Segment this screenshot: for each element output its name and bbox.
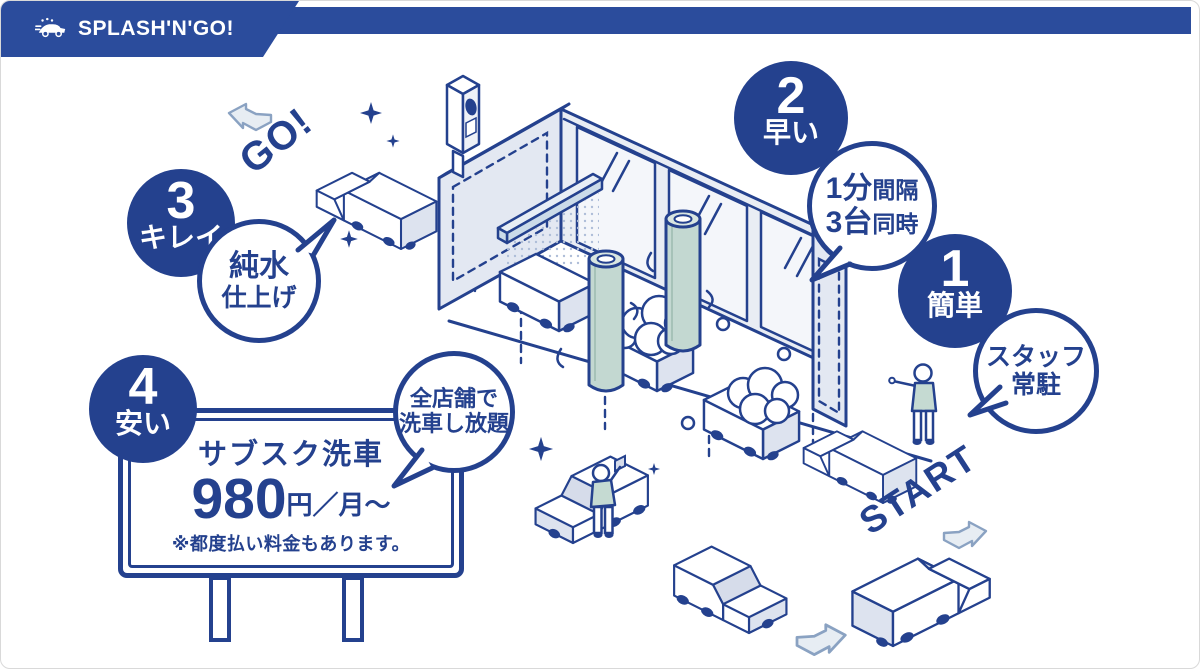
all-stores-bubble: 全店舗で 洗車し放題 <box>393 351 515 473</box>
all-stores-line-1: 全店舗で <box>410 387 498 412</box>
speed-line-2: 3台同時 <box>826 206 919 240</box>
speech-bubble-tail <box>392 448 440 492</box>
signboard-leg-left <box>209 576 231 642</box>
pure-water-bubble: 純水 仕上げ <box>197 219 321 343</box>
feature-2-title: 早い <box>763 118 819 147</box>
speech-bubble-tail <box>968 385 1016 429</box>
feature-circle-4: 4 安い <box>89 355 197 463</box>
feature-2-number: 2 <box>777 74 806 118</box>
speed-line-1: 1分間隔 <box>826 172 919 206</box>
all-stores-line-2: 洗車し放題 <box>399 412 509 437</box>
queue-direction-arrow <box>797 625 845 655</box>
staff-line-1: スタッフ <box>986 343 1086 371</box>
queue-car-waiting <box>852 559 989 649</box>
staff-pointing-figure <box>889 365 936 446</box>
price-row: 980 円／月〜 <box>191 471 390 528</box>
speed-bubble: 1分間隔 3台同時 <box>807 141 937 271</box>
feature-1-number: 1 <box>941 247 970 291</box>
price-note: ※都度払い料金もあります。 <box>172 530 410 556</box>
staff-bubble: スタッフ 常駐 <box>973 308 1099 434</box>
staff-line-2: 常駐 <box>1011 371 1061 399</box>
feature-4-number: 4 <box>129 365 158 409</box>
feature-4-title: 安い <box>115 409 171 438</box>
pure-water-line-2: 仕上げ <box>221 284 296 312</box>
start-direction-arrow <box>944 522 986 548</box>
speech-bubble-tail <box>290 216 338 260</box>
car-wash-infographic: SPLASH'N'GO! <box>0 0 1200 669</box>
price-value: 980 <box>191 471 286 528</box>
speech-bubble-tail <box>810 246 858 290</box>
price-unit: 円／月〜 <box>287 485 391 528</box>
feature-3-number: 3 <box>167 179 196 223</box>
pure-water-line-1: 純水 <box>229 250 289 284</box>
queue-car-turning <box>674 547 786 633</box>
wash-car-1 <box>500 254 595 334</box>
feature-1-title: 簡単 <box>927 291 983 320</box>
signboard-leg-right <box>342 576 364 642</box>
